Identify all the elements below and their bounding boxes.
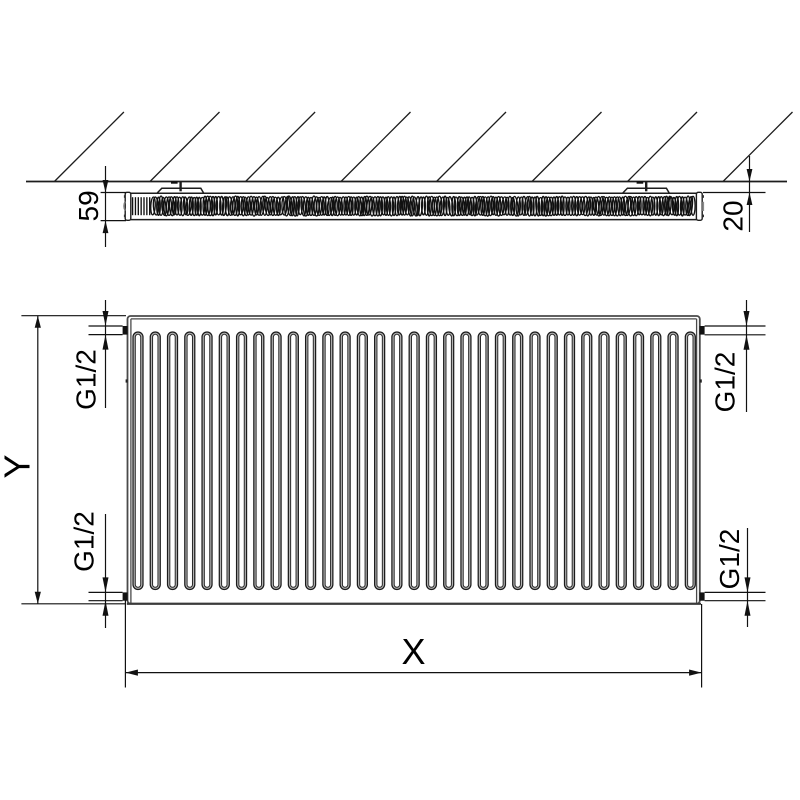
svg-text:G1/2: G1/2 [71,349,102,410]
svg-text:59: 59 [73,190,104,221]
svg-text:20: 20 [718,200,749,231]
svg-text:G1/2: G1/2 [69,511,100,572]
svg-text:X: X [401,631,425,672]
svg-text:Y: Y [0,454,38,478]
svg-text:G1/2: G1/2 [714,529,745,590]
svg-text:G1/2: G1/2 [710,352,741,413]
